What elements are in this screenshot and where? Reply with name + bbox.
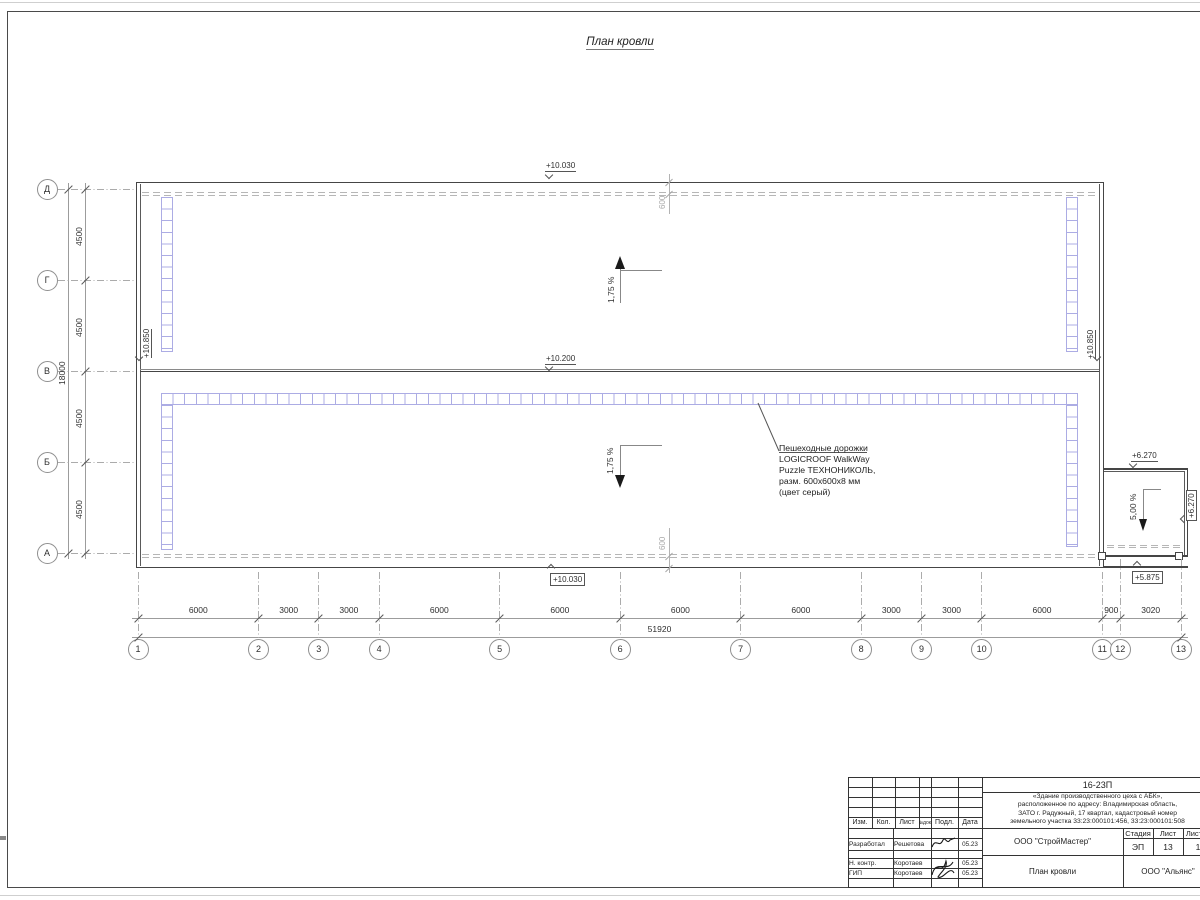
walkway-strip-upper-left bbox=[161, 197, 173, 352]
dimension-value: 6000 bbox=[771, 605, 831, 615]
column-axis-bubble: 8 bbox=[851, 639, 872, 660]
elevation-roof-bottom: +10.030 bbox=[550, 573, 585, 586]
bottom-dim-line-segments bbox=[132, 618, 1188, 619]
dimension-value: 4500 bbox=[74, 318, 84, 337]
tb-name: Коротаев bbox=[894, 868, 931, 878]
slope-arrow-down-line bbox=[620, 445, 621, 475]
wall-inner-right bbox=[1099, 184, 1100, 566]
dimension-value: 3000 bbox=[922, 605, 982, 615]
tb-col-data: Дата bbox=[958, 817, 982, 828]
slope-arrow-up-icon bbox=[615, 256, 625, 269]
row-axis-line bbox=[58, 462, 136, 463]
walkway-strip-lower-top bbox=[161, 393, 1078, 405]
annex-corner-block-left bbox=[1098, 552, 1106, 560]
parapet-dashed-top-b bbox=[142, 195, 1098, 196]
parapet-dashed-top-a bbox=[142, 192, 1098, 193]
column-axis-line bbox=[740, 572, 741, 638]
row-axis-line bbox=[58, 371, 136, 372]
row-axis-bubble: А bbox=[37, 543, 58, 564]
tb-designer-org: ООО "СтройМастер" bbox=[982, 828, 1123, 855]
walkway-note-line: LOGICROOF WalkWay bbox=[779, 454, 889, 464]
column-axis-bubble: 13 bbox=[1171, 639, 1192, 660]
row-axis-bubble: Б bbox=[37, 452, 58, 473]
column-axis-bubble: 3 bbox=[308, 639, 329, 660]
annex-right-inner bbox=[1184, 471, 1185, 556]
column-axis-bubble: 7 bbox=[730, 639, 751, 660]
tb-stage-label: Стадия bbox=[1123, 828, 1153, 838]
tb-name: Коротаев bbox=[894, 858, 931, 868]
parapet-dashed-bottom-a bbox=[142, 554, 1098, 555]
walkway-note-line: (цвет серый) bbox=[779, 487, 889, 497]
elevation-annex-top: +6.270 bbox=[1131, 451, 1158, 462]
bottom-dim-line-total bbox=[132, 637, 1188, 638]
dimension-value: 4500 bbox=[74, 409, 84, 428]
drawing-sheet: План кровли 1,75 % 1,75 % 5,00 % +10.030… bbox=[0, 0, 1200, 900]
wall-inner-left bbox=[140, 184, 141, 566]
dimension-value: 3000 bbox=[319, 605, 379, 615]
row-axis-line bbox=[58, 280, 136, 281]
annex-dashed-a bbox=[1107, 545, 1183, 546]
annex-slope-leg bbox=[1143, 489, 1161, 490]
tb-role: Разработал bbox=[849, 838, 893, 850]
dimension-value: 6000 bbox=[409, 605, 469, 615]
column-axis-line bbox=[1120, 559, 1121, 638]
dimension-value: 3000 bbox=[259, 605, 319, 615]
row-axis-bubble: В bbox=[37, 361, 58, 382]
drawing-title: План кровли bbox=[520, 36, 720, 50]
elevation-parapet-left: +10.850 bbox=[142, 329, 152, 358]
parapet-offset-top: 600 bbox=[658, 196, 667, 209]
annex-corner-block-right bbox=[1175, 552, 1183, 560]
elevation-roof-top: +10.030 bbox=[545, 161, 576, 172]
paper-edge-top bbox=[0, 2, 1200, 3]
tb-role: ГИП bbox=[849, 868, 893, 878]
tb-project-description: «Здание производственного цеха с АБК», р… bbox=[984, 793, 1200, 827]
tb-col-podl: Подл. bbox=[931, 817, 958, 828]
annex-slope-line bbox=[1143, 489, 1144, 519]
column-axis-bubble: 1 bbox=[128, 639, 149, 660]
walkway-strip-lower-right bbox=[1066, 405, 1078, 547]
annex-top-inner bbox=[1104, 471, 1185, 472]
parapet-dashed-bottom-b bbox=[142, 557, 1098, 558]
tb-sheet-value: 13 bbox=[1153, 838, 1183, 855]
dimension-value: 3020 bbox=[1121, 605, 1181, 615]
tb-sheets-value: 1 bbox=[1183, 838, 1200, 855]
tb-role: Н. контр. bbox=[849, 858, 893, 868]
tb-sheets-label: Листов bbox=[1183, 828, 1200, 838]
annex-top-outer bbox=[1104, 468, 1188, 470]
walkway-note-line: Puzzle ТЕХНОНИКОЛЬ, bbox=[779, 465, 889, 475]
column-axis-bubble: 2 bbox=[248, 639, 269, 660]
fold-mark bbox=[0, 836, 6, 840]
row-axis-bubble: Г bbox=[37, 270, 58, 291]
walkway-strip-lower-left bbox=[161, 405, 173, 550]
dimension-total-value: 18000 bbox=[57, 361, 67, 385]
column-axis-bubble: 9 bbox=[911, 639, 932, 660]
tb-col-doc: №док. bbox=[919, 817, 931, 828]
tb-sheet-title: План кровли bbox=[982, 855, 1123, 888]
dimension-total-value: 51920 bbox=[630, 624, 690, 634]
tb-sheet-label: Лист bbox=[1153, 828, 1183, 838]
column-axis-line bbox=[138, 572, 139, 638]
dimension-value: 6000 bbox=[1012, 605, 1072, 615]
tb-client-org: ООО "Альянс" bbox=[1123, 855, 1200, 888]
tb-col-kol: Кол. bbox=[872, 817, 895, 828]
annex-slope-arrow-icon bbox=[1139, 519, 1147, 531]
dimension-value: 6000 bbox=[650, 605, 710, 615]
elevation-annex-right: +6.270 bbox=[1186, 490, 1197, 521]
column-axis-line bbox=[499, 572, 500, 638]
dimension-value: 3000 bbox=[861, 605, 921, 615]
paper-edge-bottom bbox=[0, 895, 1200, 896]
parapet-offset-bottom: 600 bbox=[658, 537, 667, 550]
tb-col-izm: Изм. bbox=[848, 817, 872, 828]
slope-label-lower: 1,75 % bbox=[605, 448, 615, 474]
column-axis-bubble: 5 bbox=[489, 639, 510, 660]
slope-arrow-down-leg bbox=[620, 445, 662, 446]
slope-arrow-up-line bbox=[620, 269, 621, 303]
main-bottom-edge-extension bbox=[1104, 566, 1188, 568]
walkway-note-line: Пешеходные дорожки bbox=[779, 443, 889, 453]
roof-step-line-light bbox=[140, 369, 1099, 370]
tb-date: 05.23 bbox=[958, 858, 982, 868]
tb-stage-value: ЭП bbox=[1123, 838, 1153, 855]
annex-dashed-b bbox=[1107, 547, 1183, 548]
column-axis-bubble: 10 bbox=[971, 639, 992, 660]
dimension-value: 4500 bbox=[74, 227, 84, 246]
walkway-strip-upper-right bbox=[1066, 197, 1078, 352]
tb-date: 05.23 bbox=[958, 838, 982, 850]
roof-step-line bbox=[140, 371, 1099, 373]
column-axis-bubble: 4 bbox=[369, 639, 390, 660]
dimension-value: 4500 bbox=[74, 500, 84, 519]
tb-date: 05.23 bbox=[958, 868, 982, 878]
slope-arrow-down-icon bbox=[615, 475, 625, 488]
annex-slope-label: 5,00 % bbox=[1128, 494, 1138, 520]
row-axis-bubble: Д bbox=[37, 179, 58, 200]
signature bbox=[930, 835, 956, 850]
tb-name: Решетова bbox=[894, 838, 931, 850]
column-axis-bubble: 12 bbox=[1110, 639, 1131, 660]
elevation-annex-bottom: +5.875 bbox=[1132, 571, 1163, 584]
slope-arrow-up-leg bbox=[620, 270, 662, 271]
column-axis-bubble: 6 bbox=[610, 639, 631, 660]
walkway-note-line: разм. 600х600х8 мм bbox=[779, 476, 889, 486]
slope-label-upper: 1,75 % bbox=[606, 277, 616, 303]
column-axis-line bbox=[620, 572, 621, 638]
dimension-value: 6000 bbox=[168, 605, 228, 615]
dimension-value: 6000 bbox=[530, 605, 590, 615]
main-roof-outline bbox=[136, 182, 1104, 568]
tb-col-list: Лист bbox=[895, 817, 919, 828]
tb-project-code: 16-23П bbox=[982, 777, 1200, 792]
signature bbox=[928, 855, 958, 881]
column-axis-line bbox=[1181, 559, 1182, 638]
